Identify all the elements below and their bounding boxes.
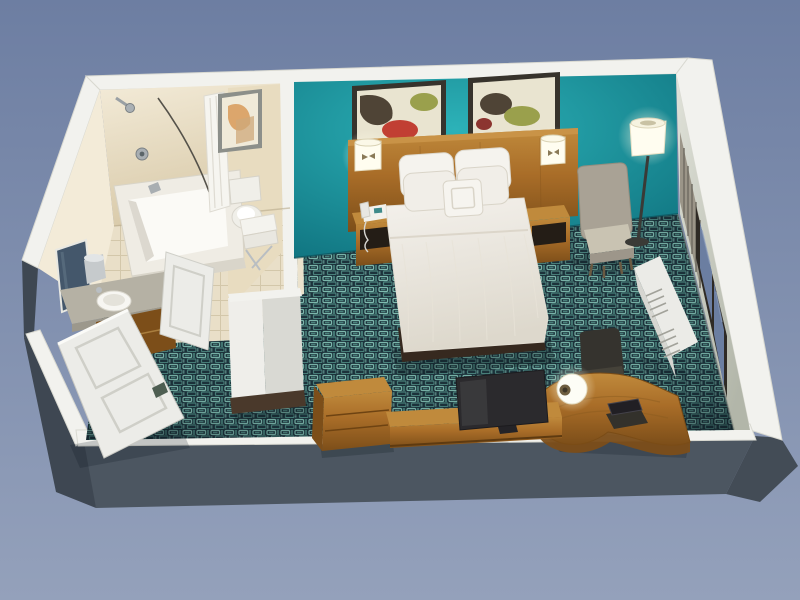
telephone-keypad	[374, 208, 382, 214]
closet-column	[228, 288, 312, 422]
sconce-right-top	[541, 135, 565, 142]
bathroom-artwork	[218, 89, 262, 153]
sink-faucet	[96, 287, 102, 293]
bathroom-door	[160, 252, 214, 350]
column-east-face	[262, 290, 304, 406]
bathroom-door-group	[160, 252, 214, 350]
column-west-face	[228, 294, 266, 410]
luggage-chest	[312, 377, 394, 458]
wall-sconce-left	[355, 139, 381, 171]
telephone-handset	[360, 202, 370, 218]
toilet-tank	[229, 176, 261, 204]
room-cutaway-render	[0, 0, 800, 600]
accent-pillow	[443, 179, 483, 218]
artwork-right-blob-red	[476, 118, 492, 130]
shower-control-center	[140, 152, 145, 157]
scene-stage	[0, 0, 800, 600]
floor-lamp-shade-ring	[640, 121, 656, 126]
desk-lamp-bulb-socket	[563, 388, 568, 393]
ice-bucket-lid	[84, 254, 104, 262]
artwork-left-blob-green	[410, 93, 438, 111]
nightstand-right-niche	[532, 222, 566, 246]
shower-head-icon	[126, 104, 135, 113]
bathroom-art-blob2	[236, 116, 254, 144]
tv-screen-reflection	[460, 379, 488, 426]
artwork-right-blob-olive	[504, 106, 540, 126]
bed-duvet	[386, 198, 548, 352]
floor-lamp-base	[625, 238, 649, 247]
chest-front	[322, 391, 392, 451]
sconce-left-top	[355, 139, 381, 146]
vanity-sink-basin	[103, 294, 125, 306]
wall-sconce-right	[541, 135, 565, 165]
